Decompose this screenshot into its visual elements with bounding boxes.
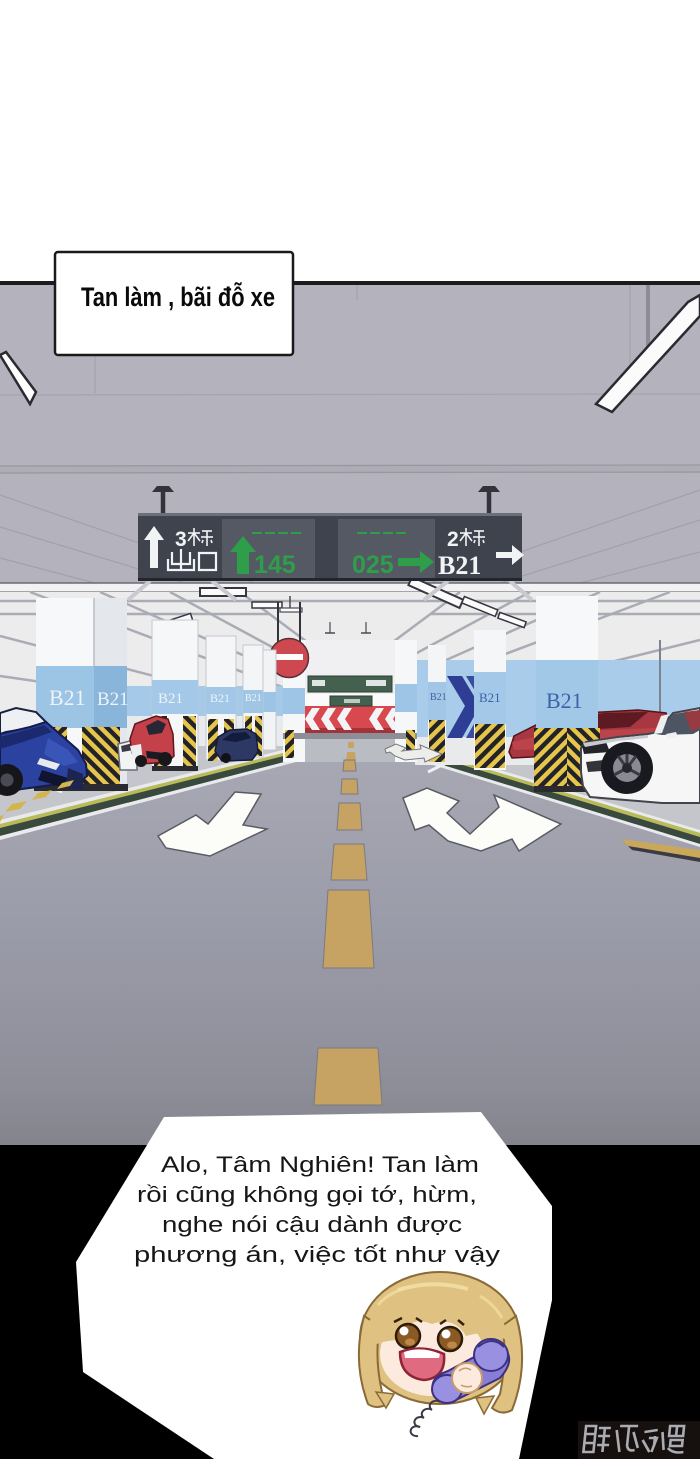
svg-text:Tan làm , bãi đỗ xe: Tan làm , bãi đỗ xe: [81, 281, 275, 312]
svg-text:B21: B21: [49, 685, 86, 710]
svg-text:B21: B21: [97, 689, 129, 710]
svg-text:B21: B21: [158, 691, 183, 707]
svg-text:025: 025: [352, 551, 394, 579]
svg-text:B21: B21: [245, 693, 262, 704]
svg-text:rồi cũng không gọi tớ, hừm,: rồi cũng không gọi tớ, hừm,: [137, 1182, 477, 1207]
svg-text:2: 2: [447, 528, 459, 551]
svg-text:B21: B21: [438, 551, 481, 580]
svg-text:phương án, việc tốt như vậy: phương án, việc tốt như vậy: [134, 1242, 500, 1267]
svg-text:B21: B21: [430, 692, 447, 703]
svg-text:3: 3: [175, 528, 187, 551]
svg-text:145: 145: [254, 551, 296, 579]
svg-text:B21: B21: [546, 688, 583, 713]
svg-text:nghe nói cậu dành được: nghe nói cậu dành được: [162, 1212, 462, 1237]
svg-text:B21: B21: [210, 691, 230, 705]
svg-text:Alo, Tâm Nghiên! Tan làm: Alo, Tâm Nghiên! Tan làm: [161, 1152, 479, 1177]
svg-text:B21: B21: [479, 690, 501, 705]
